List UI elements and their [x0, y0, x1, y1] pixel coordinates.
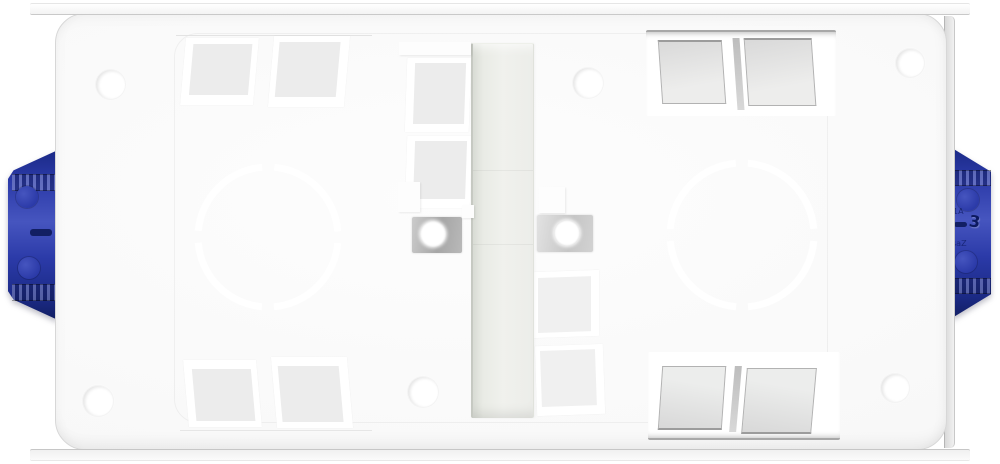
lug-tab: [462, 205, 474, 218]
knockout-tab: [399, 42, 471, 55]
fixing-hole-top-right: [896, 49, 924, 77]
knockout-square: [741, 368, 817, 434]
circular-knockout-left: [198, 167, 338, 307]
pocket-divider: [729, 366, 742, 432]
knockout-square: [535, 344, 605, 416]
channel-seam: [473, 170, 533, 171]
screw-lug-right: [537, 215, 593, 252]
fixing-hole-bottom-left: [83, 386, 113, 416]
knockout-square: [658, 366, 726, 430]
fixing-hole-bottom-center: [408, 377, 438, 407]
knockout-square: [744, 38, 817, 106]
center-channel: [471, 43, 534, 418]
lug-tab: [539, 187, 565, 213]
knockout-pocket-bottom-right: [648, 352, 840, 440]
box-bottom-edge: [30, 449, 970, 461]
screw-lug-left: [412, 217, 462, 253]
circular-knockout-right: [670, 163, 814, 307]
screw-hole: [420, 221, 446, 247]
lug-tab: [398, 182, 420, 212]
knockout-square: [533, 270, 599, 338]
knockout-pocket-top-right: [646, 30, 836, 116]
channel-seam: [473, 244, 533, 245]
knockout-square: [180, 38, 259, 105]
screw-hole: [554, 220, 580, 246]
pocket-divider: [732, 38, 744, 110]
knockout-square: [268, 36, 350, 107]
knockout-square: [183, 360, 262, 427]
product-photo: 1A 3 saZ: [0, 0, 1000, 464]
fixing-hole-top-left: [96, 70, 125, 99]
fixing-hole-top-center: [573, 68, 603, 98]
box-top-edge: [30, 3, 970, 15]
fixing-hole-bottom-right: [881, 374, 909, 402]
knockout-square: [405, 58, 472, 132]
wall-score-line: [180, 430, 372, 431]
knockout-square: [658, 40, 726, 104]
knockout-square: [271, 357, 353, 428]
